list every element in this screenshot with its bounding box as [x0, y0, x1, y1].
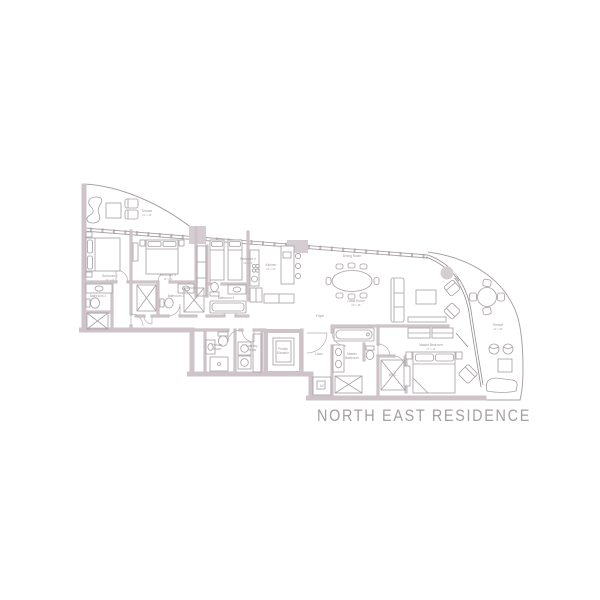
nightstand — [456, 352, 462, 359]
label-master-bath-2: Bathroom — [345, 356, 359, 360]
toilet — [211, 282, 219, 291]
terrace-nw-furniture — [87, 197, 138, 223]
label-wic: W.I.C. — [389, 373, 398, 377]
terrace-chair — [498, 293, 505, 301]
nightstand — [86, 272, 92, 277]
round-table — [478, 288, 497, 307]
master-bedroom-furniture — [404, 328, 478, 393]
closet-strip — [197, 246, 206, 296]
nightstand — [406, 352, 412, 359]
label-bedroom3: Bedroom 3 — [160, 273, 176, 277]
label-powder-2: Room — [213, 347, 222, 351]
pillow — [212, 242, 223, 247]
label-foyer: Foyer — [316, 314, 325, 318]
kitchen-fixtures — [250, 246, 301, 303]
label-bathroom4: Bathroom 4 — [218, 296, 235, 300]
stool — [295, 253, 300, 258]
stool — [295, 273, 300, 278]
dims-bedroom4: 12' x 10' — [243, 261, 253, 265]
vanity — [228, 285, 246, 294]
toilet-tank — [86, 299, 90, 307]
drum-stool — [489, 344, 499, 354]
terrace-chair — [482, 279, 491, 287]
plan-title: NORTH EAST RESIDENCE — [317, 406, 531, 425]
label-kitchen: Kitchen — [266, 263, 277, 267]
floor-plan-sheet: Terrace 21' x 10' Bedroom 2 12' x 11' Be… — [0, 0, 600, 600]
pillow — [416, 354, 434, 361]
label-dining: Dining Room — [343, 254, 362, 258]
great-room-furniture — [391, 267, 460, 323]
label-master-bed: Master Bedroom — [419, 343, 443, 347]
chair — [348, 263, 355, 268]
chair — [360, 293, 367, 298]
powder-room-fixtures — [206, 332, 228, 371]
vanity — [178, 284, 194, 293]
label-ac: AC — [320, 384, 325, 388]
bedroom3-furniture — [140, 240, 184, 274]
bedroom3-closet — [137, 285, 156, 311]
laundry-fixtures — [238, 334, 261, 372]
dims-bedroom3: 12' x 11' — [163, 277, 173, 281]
terrace-chair — [125, 210, 138, 219]
toilet — [91, 298, 100, 308]
chair — [336, 264, 343, 269]
terrace-chair — [125, 199, 138, 208]
label-bathroom2: Bathroom 2 — [90, 294, 107, 298]
stool — [295, 263, 300, 268]
dining-furniture — [326, 263, 379, 299]
terrace-table — [106, 203, 121, 218]
toilet — [366, 350, 374, 359]
coffee-table — [416, 290, 436, 304]
label-bathroom3: Bathroom 3 — [168, 294, 185, 298]
toilet-tank — [366, 346, 374, 350]
dresser — [404, 366, 410, 386]
dims-master-bed: 17' x 13' — [426, 347, 436, 351]
chaise-lounge — [486, 378, 517, 393]
dining-table — [332, 271, 372, 292]
nightstand — [179, 240, 184, 246]
drain — [218, 363, 221, 366]
chair — [336, 293, 343, 298]
chair — [360, 264, 367, 269]
terrace-chair — [470, 293, 477, 301]
media-console — [408, 317, 446, 322]
terrace-chair — [482, 307, 491, 315]
label-terrace-nw: Terrace — [142, 209, 153, 213]
chair — [326, 278, 331, 285]
column — [441, 267, 454, 280]
chaise-lounge — [87, 197, 102, 223]
dryer — [238, 356, 251, 369]
label-elevator-2: Elevator — [277, 351, 290, 355]
label-linen: Linen — [315, 352, 323, 356]
pillow — [163, 242, 176, 247]
pillow — [230, 242, 241, 247]
label-great-room: Great Room — [347, 299, 365, 303]
dresser — [133, 243, 138, 261]
pillow — [436, 354, 454, 361]
bathroom2-fixtures — [86, 284, 112, 329]
drum-stool — [503, 344, 513, 354]
toilet — [165, 298, 173, 308]
label-bedroom2: Bedroom 2 — [102, 274, 118, 278]
nightstand — [140, 240, 145, 246]
toilet-tank — [160, 299, 164, 307]
label-laundry-2: Room — [248, 348, 257, 352]
dims-great-room: 20' x 15' — [351, 303, 361, 307]
terrace-table — [498, 359, 512, 372]
vanity — [86, 284, 112, 293]
dims-bedroom2: 12' x 11' — [105, 278, 115, 282]
dims-terrace-nw: 21' x 10' — [142, 213, 152, 217]
armchair — [458, 364, 478, 384]
shower — [210, 357, 228, 371]
label-bedroom4: Bedroom 4 — [240, 257, 256, 261]
nightstand — [86, 232, 92, 237]
floor-plan-drawing: Terrace 21' x 10' Bedroom 2 12' x 11' Be… — [0, 0, 600, 600]
dims-kitchen: 14' x 10' — [266, 267, 276, 271]
pillow — [148, 242, 161, 247]
label-terrace-e: Terrace — [493, 323, 504, 327]
dims-terrace-e: 12' x 26' — [493, 327, 503, 331]
pillow — [88, 240, 93, 253]
pillow — [88, 256, 93, 269]
master-bathroom-fixtures — [333, 328, 374, 393]
sofa — [391, 278, 404, 322]
chair — [374, 278, 379, 285]
